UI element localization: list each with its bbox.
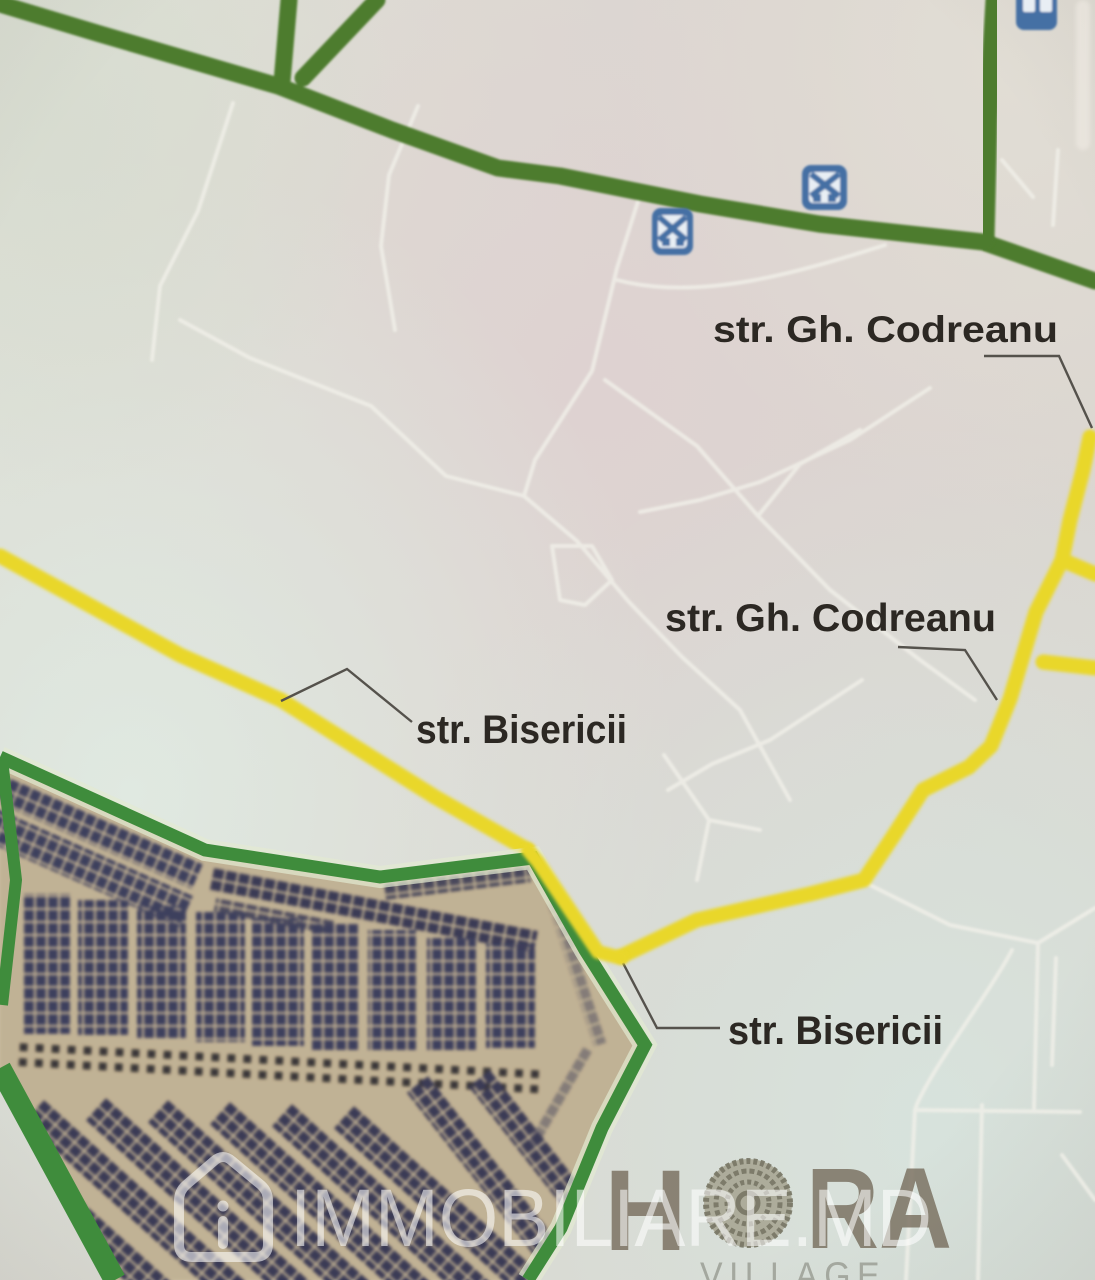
svg-text:str. Gh. Codreanu: str. Gh. Codreanu <box>713 309 1058 350</box>
svg-text:IMMOBILIARE.MD: IMMOBILIARE.MD <box>290 1173 932 1264</box>
svg-text:str. Bisericii: str. Bisericii <box>728 1009 943 1053</box>
svg-text:str. Gh. Codreanu: str. Gh. Codreanu <box>665 597 996 640</box>
svg-text:str. Bisericii: str. Bisericii <box>416 708 627 752</box>
